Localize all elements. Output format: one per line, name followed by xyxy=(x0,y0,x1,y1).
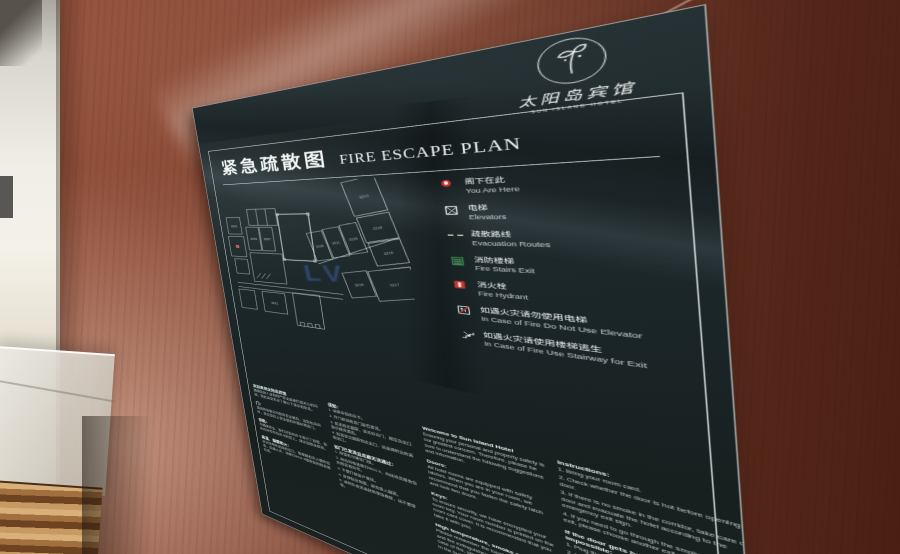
room-label: 3209 xyxy=(315,243,326,249)
room-label: 3219 xyxy=(354,282,366,288)
stairway-exit-icon xyxy=(460,329,477,340)
room-label: 3221 xyxy=(271,300,280,305)
room-label: 3216 xyxy=(383,250,396,257)
legend-label-en: Evacuation Routes xyxy=(472,239,551,249)
legend-item-elevators: 电梯 Elevators xyxy=(444,199,693,221)
legend-label-en: Fire Stairs Exit xyxy=(475,265,535,276)
legend-label-zh: 电梯 xyxy=(467,204,505,214)
room-label: 3218 xyxy=(372,224,385,231)
legend-item-evacuation-routes: 疏散路线 Evacuation Routes xyxy=(447,230,696,253)
room-label: 3215 xyxy=(348,236,360,243)
acrylic-edge xyxy=(0,380,115,402)
floor-shadow xyxy=(82,416,152,554)
photo-watermark: LV xyxy=(302,261,351,288)
dark-object xyxy=(0,176,13,218)
room-label: 3213 xyxy=(358,192,370,199)
logo-emblem-icon xyxy=(535,32,608,88)
corner-shadow xyxy=(0,0,42,66)
you-are-here-marker xyxy=(236,245,240,248)
room-label: 3205 xyxy=(250,237,258,242)
room-label: 3217 xyxy=(389,282,402,288)
you-are-here-icon xyxy=(441,179,457,187)
legend-item-fire-stairs: 消防楼梯 Fire Stairs Exit xyxy=(450,255,698,285)
room-label: 3201 xyxy=(231,224,239,228)
legend-label-en: Elevators xyxy=(469,213,507,221)
no-elevator-icon xyxy=(457,305,474,316)
fire-hydrant-icon xyxy=(453,281,469,290)
elevator-icon xyxy=(444,205,461,215)
evacuation-route-icon xyxy=(447,231,463,236)
room-label: 3207 xyxy=(263,237,272,242)
photo-scene: 太阳岛宾馆 SUN ISLAND HOTEL 紧急疏散图 FIRE ESCAPE… xyxy=(0,0,900,554)
legend-label-en: You Are Here xyxy=(465,185,520,195)
column-zh-welcome: 欢迎来到太阳岛宾馆 确保您的人身和财产安全是我们最关心的问题，因此请您务必了解以… xyxy=(252,383,339,523)
room-label: 3211 xyxy=(331,239,342,245)
fire-stairs-icon xyxy=(450,256,467,266)
